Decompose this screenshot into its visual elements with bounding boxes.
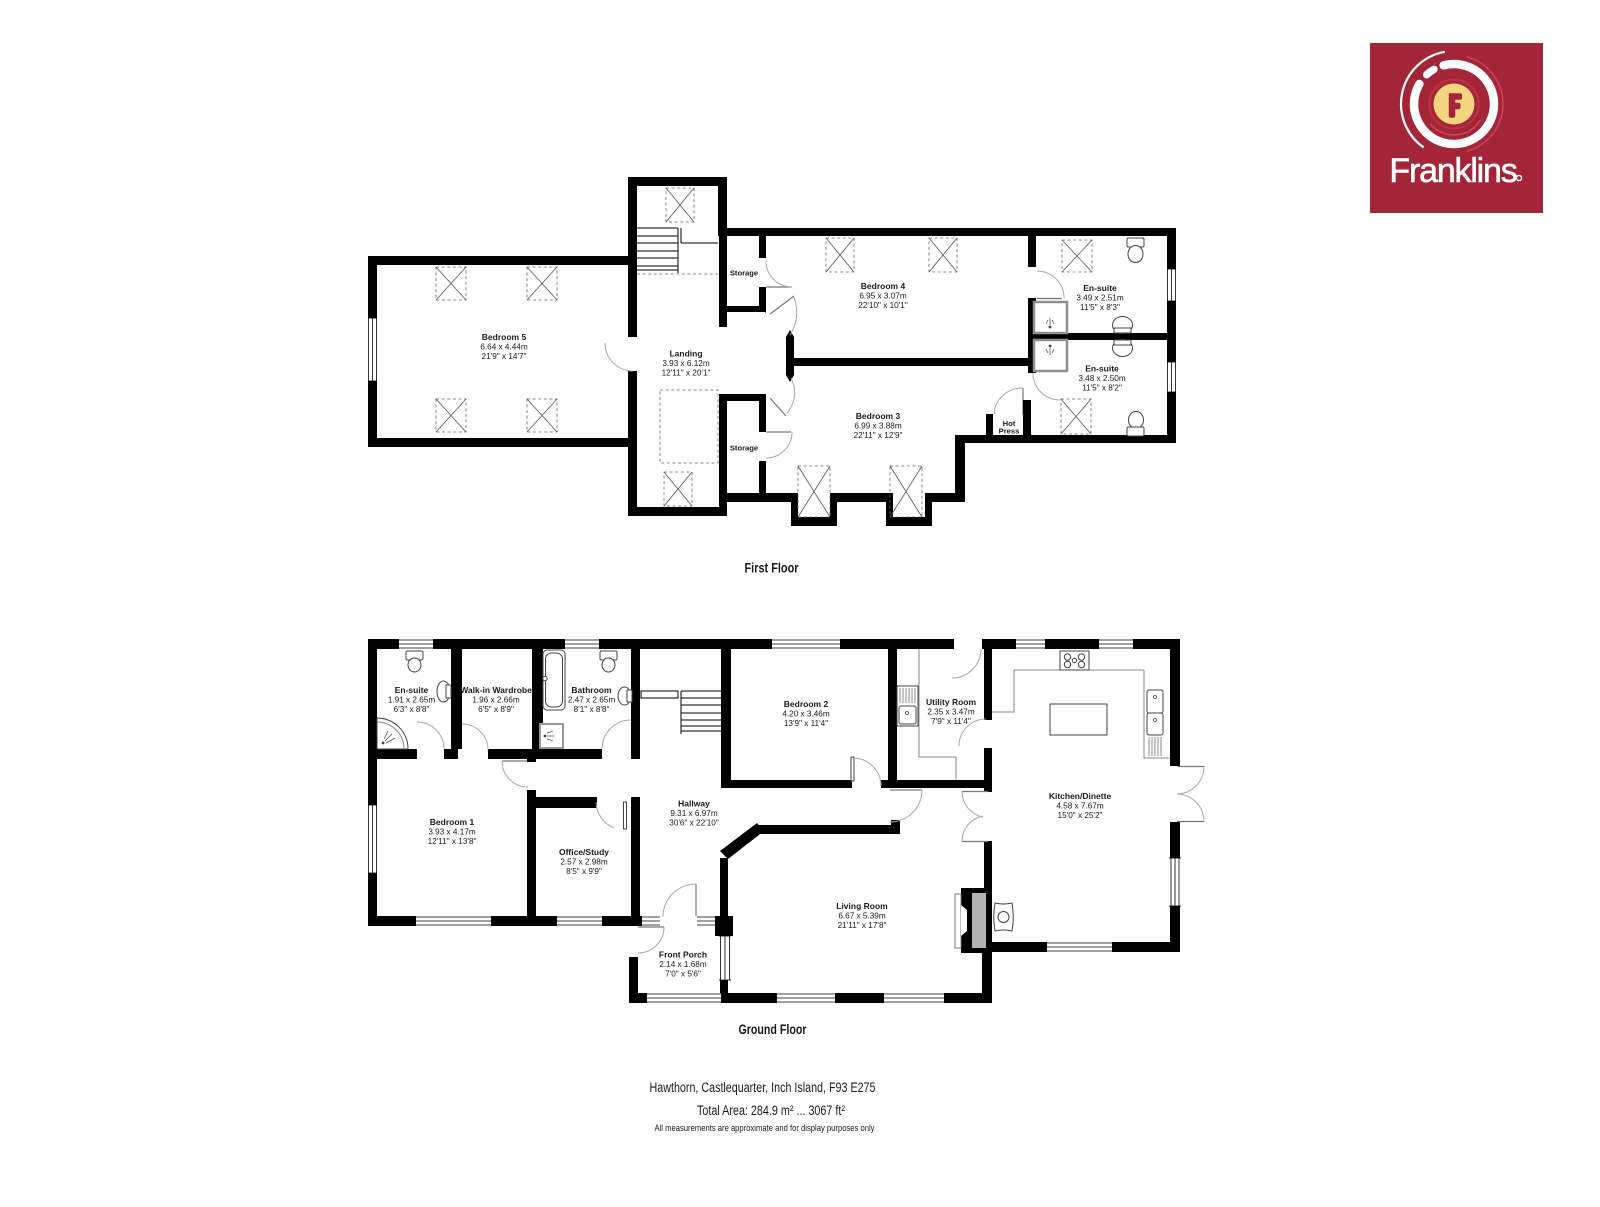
svg-text:21'11" x 17'8": 21'11" x 17'8" (838, 921, 887, 930)
svg-text:3.93 x 6.12m: 3.93 x 6.12m (662, 359, 710, 368)
svg-text:6.64 x 4.44m: 6.64 x 4.44m (480, 342, 528, 351)
svg-text:Hallway: Hallway (678, 799, 710, 809)
svg-text:6.67 x 5.39m: 6.67 x 5.39m (838, 911, 886, 920)
svg-text:All measurements are approxima: All measurements are approximate and for… (655, 1123, 875, 1134)
svg-text:Kitchen/Dinette: Kitchen/Dinette (1049, 791, 1112, 801)
svg-text:4.20 x 3.46m: 4.20 x 3.46m (782, 709, 830, 718)
svg-text:21'9" x 14'7": 21'9" x 14'7" (482, 352, 527, 361)
svg-text:Walk-in Wardrobe: Walk-in Wardrobe (460, 685, 532, 695)
svg-text:2.57 x 2.98m: 2.57 x 2.98m (560, 857, 608, 866)
svg-text:Office/Study: Office/Study (559, 847, 609, 857)
svg-text:3.49 x 2.51m: 3.49 x 2.51m (1076, 293, 1124, 302)
svg-text:6.95 x 3.07m: 6.95 x 3.07m (859, 291, 907, 300)
svg-text:Bedroom 4: Bedroom 4 (861, 281, 906, 291)
svg-text:En-suite: En-suite (1085, 364, 1119, 374)
svg-text:Bedroom 1: Bedroom 1 (430, 817, 475, 827)
svg-text:Hawthorn, Castlequarter, Inch: Hawthorn, Castlequarter, Inch Island, F9… (650, 1080, 876, 1095)
svg-text:12'11" x 13'8": 12'11" x 13'8" (428, 837, 477, 846)
svg-text:3.48 x 2.50m: 3.48 x 2.50m (1078, 374, 1126, 383)
svg-text:6'3" x 8'8": 6'3" x 8'8" (394, 705, 430, 714)
svg-text:22'11" x 12'9": 22'11" x 12'9" (854, 431, 903, 440)
svg-text:12'11" x 20'1": 12'11" x 20'1" (662, 368, 711, 377)
svg-text:Total Area: 284.9 m² ... 3067: Total Area: 284.9 m² ... 3067 ft² (697, 1103, 845, 1118)
svg-text:3.93 x 4.17m: 3.93 x 4.17m (428, 827, 476, 836)
svg-text:2.14 x 1.68m: 2.14 x 1.68m (659, 960, 707, 969)
svg-text:22'10" x 10'1": 22'10" x 10'1" (858, 301, 908, 310)
svg-text:Bedroom 3: Bedroom 3 (856, 411, 901, 421)
svg-text:1.91 x 2.65m: 1.91 x 2.65m (388, 695, 436, 704)
svg-text:8'1" x 8'8": 8'1" x 8'8" (574, 705, 610, 714)
svg-text:First Floor: First Floor (745, 560, 799, 576)
svg-text:13'9" x 11'4": 13'9" x 11'4" (784, 719, 828, 728)
svg-text:6.99 x 3.88m: 6.99 x 3.88m (854, 421, 902, 430)
svg-text:Bathroom: Bathroom (571, 685, 612, 695)
svg-text:6'5" x 8'9": 6'5" x 8'9" (478, 705, 514, 714)
svg-text:11'5" x 8'2": 11'5" x 8'2" (1082, 383, 1122, 392)
svg-text:Landing: Landing (669, 349, 702, 359)
svg-text:Franklins: Franklins (1389, 152, 1516, 190)
svg-text:En-suite: En-suite (395, 685, 429, 695)
svg-text:9.31 x 6.97m: 9.31 x 6.97m (670, 809, 718, 818)
svg-text:15'0" x 25'2": 15'0" x 25'2" (1058, 811, 1103, 820)
svg-text:Storage: Storage (730, 269, 758, 278)
svg-text:Storage: Storage (730, 444, 758, 453)
svg-text:En-suite: En-suite (1083, 283, 1117, 293)
svg-text:Press: Press (999, 427, 1020, 436)
svg-text:2.47 x 2.65m: 2.47 x 2.65m (568, 695, 616, 704)
svg-text:1.96 x 2.66m: 1.96 x 2.66m (472, 695, 520, 704)
svg-text:30'6" x 22'10": 30'6" x 22'10" (669, 818, 719, 827)
svg-text:4.58 x 7.67m: 4.58 x 7.67m (1056, 801, 1104, 810)
svg-text:Utility Room: Utility Room (926, 697, 976, 707)
svg-text:Living Room: Living Room (836, 901, 888, 911)
svg-text:2.35 x 3.47m: 2.35 x 3.47m (927, 707, 975, 716)
svg-text:11'5" x 8'3": 11'5" x 8'3" (1080, 303, 1120, 312)
svg-text:Bedroom 2: Bedroom 2 (784, 699, 829, 709)
svg-text:7'9" x 11'4": 7'9" x 11'4" (931, 717, 971, 726)
svg-text:Front Porch: Front Porch (659, 950, 707, 960)
svg-text:Bedroom 5: Bedroom 5 (482, 332, 527, 342)
svg-text:Ground Floor: Ground Floor (739, 1021, 807, 1037)
svg-text:8'5" x 9'9": 8'5" x 9'9" (566, 867, 602, 876)
svg-text:7'0" x 5'6": 7'0" x 5'6" (665, 969, 701, 978)
